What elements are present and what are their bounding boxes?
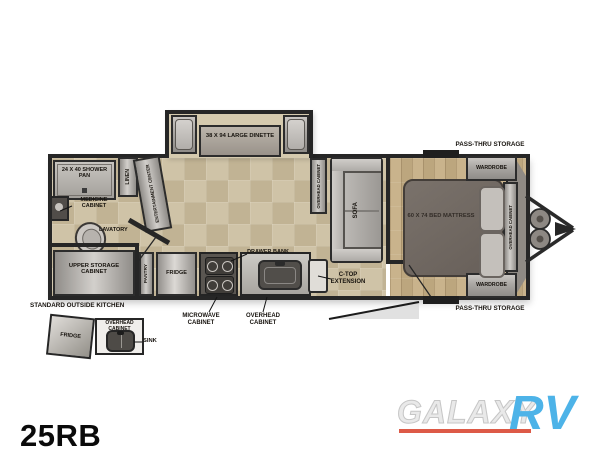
bathroom-sink-bowl xyxy=(55,203,63,211)
sofa-armrest xyxy=(332,247,381,261)
entry-door-swing xyxy=(329,302,419,319)
propane-tank-valve xyxy=(537,216,544,223)
fridge-label: FRIDGE xyxy=(158,270,195,276)
propane-tank-valve xyxy=(537,236,544,243)
drawer-bank-label: DRAWER BANK xyxy=(240,249,296,255)
sink-divider xyxy=(121,334,122,348)
sofa-label-wrap: SOFA xyxy=(342,185,372,235)
wardrobe-label: WARDROBE xyxy=(468,165,515,171)
entry-door-swing-shade xyxy=(330,302,419,319)
trailer-hitch xyxy=(526,196,576,262)
burner xyxy=(207,261,218,272)
shower-drain xyxy=(82,188,87,193)
outside-sink-label: SINK xyxy=(143,338,167,344)
propane-tank xyxy=(530,229,550,249)
bed-mattress-label: 60 x 74 BED MATTRESS xyxy=(405,213,477,219)
sofa-label: SOFA xyxy=(353,202,360,218)
microwave-cabinet-label: MICROWAVE CABINET xyxy=(180,313,222,326)
stove-cooktop xyxy=(199,252,238,296)
hitch-coupler xyxy=(555,222,576,236)
pantry-label: PANTRY xyxy=(144,264,150,283)
dinette-bench-cushion xyxy=(287,119,305,150)
rv-watermark-text: RV xyxy=(509,386,576,441)
countertop-extension xyxy=(308,259,328,293)
passthru-storage-label: PASS-THRU STORAGE xyxy=(448,305,532,312)
outside-kitchen-fridge: FRIDGE xyxy=(46,314,95,359)
pillow xyxy=(479,232,505,278)
kitchen-sink xyxy=(258,260,302,290)
wardrobe-top: WARDROBE xyxy=(466,156,517,181)
faucet xyxy=(275,261,285,266)
sink-basin xyxy=(264,267,296,284)
passthru-storage-label: PASS-THRU STORAGE xyxy=(448,141,532,148)
burner-cluster xyxy=(205,276,234,294)
burner xyxy=(222,261,233,272)
burner xyxy=(207,280,218,291)
outside-fridge-label: FRIDGE xyxy=(50,331,91,341)
model-number: 25RB xyxy=(20,418,101,454)
wardrobe-label: WARDROBE xyxy=(468,282,515,288)
linen-label: LINEN xyxy=(125,169,131,185)
dinette-bench-left xyxy=(171,115,197,154)
hitch-a-frame xyxy=(526,196,573,262)
bed-overhead-cabinet: OVERHEAD CABINET xyxy=(503,182,518,272)
bed-overhead-cabinet-label: OVERHEAD CABINET xyxy=(508,205,513,250)
pillow xyxy=(479,186,505,232)
pantry: PANTRY xyxy=(139,252,154,296)
lavatory-label: LAVATORY xyxy=(99,227,149,233)
sofa-overhead-cabinet-label: OVERHEAD CABINET xyxy=(316,164,321,209)
shower-label: 24 x 40 SHOWER PAN xyxy=(57,167,112,179)
sofa-overhead-cabinet: OVERHEAD CABINET xyxy=(310,158,327,214)
burner-cluster xyxy=(205,257,234,275)
outside-kitchen-sink xyxy=(106,330,135,352)
dinette-table xyxy=(199,125,281,157)
bedroom-wall xyxy=(386,154,390,264)
burner xyxy=(222,280,233,291)
dinette-label: 38 x 94 LARGE DINETTE xyxy=(203,133,277,139)
dinette-bench-right xyxy=(283,115,309,154)
medicine-cabinet-label: MEDICINE CABINET xyxy=(70,197,118,209)
faucet xyxy=(117,331,124,335)
ctop-extension-label: C-TOP EXTENSION xyxy=(330,272,366,285)
upper-storage-label: UPPER STORAGE CABINET xyxy=(60,263,128,276)
rv-floorplan: 38 x 94 LARGE DINETTE 24 x 40 SHOWER PAN… xyxy=(0,0,614,460)
dinette-bench-cushion xyxy=(175,119,193,150)
watermark-underline xyxy=(399,429,531,433)
outside-kitchen-title: STANDARD OUTSIDE KITCHEN xyxy=(30,302,170,309)
entertainment-center-label: ENTERTAINMENT CENTER xyxy=(145,164,161,223)
propane-tank xyxy=(530,209,550,229)
bathroom-wall xyxy=(52,243,137,247)
overhead-cabinet-label: OVERHEAD CABINET xyxy=(242,313,284,326)
